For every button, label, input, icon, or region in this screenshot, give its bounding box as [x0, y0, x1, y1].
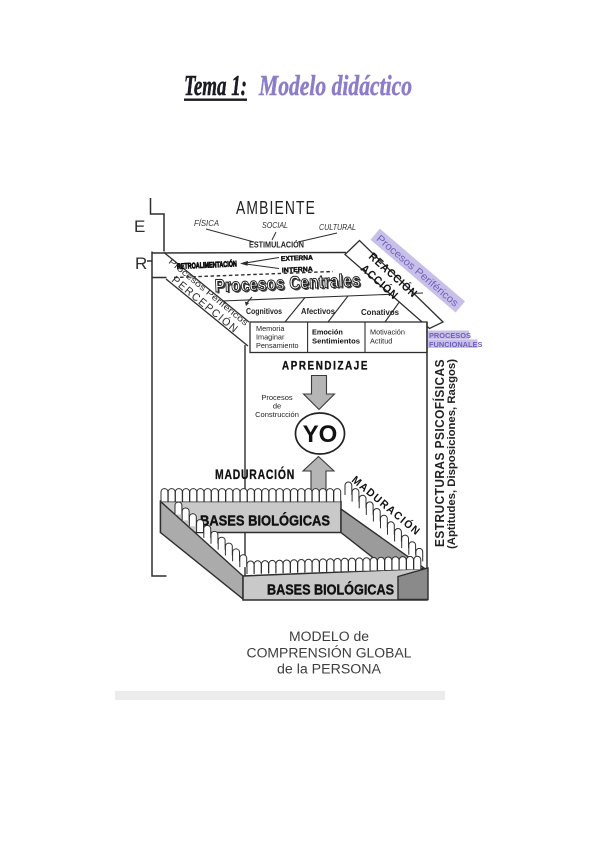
svg-text:FÍSICA: FÍSICA	[194, 218, 219, 228]
svg-text:Motivación: Motivación	[370, 328, 405, 337]
svg-text:Tema 1:: Tema 1:	[184, 70, 247, 102]
svg-text:ESTRUCTURAS PSICOFÍSICAS: ESTRUCTURAS PSICOFÍSICAS	[432, 359, 447, 547]
svg-text:FUNCIONALES: FUNCIONALES	[429, 340, 482, 349]
svg-text:Sentimientos: Sentimientos	[312, 337, 360, 346]
svg-text:MADURACIÓN: MADURACIÓN	[215, 467, 295, 482]
svg-text:APRENDIZAJE: APRENDIZAJE	[282, 359, 369, 373]
svg-text:PROCESOS: PROCESOS	[429, 331, 471, 340]
svg-text:MODELO de: MODELO de	[289, 629, 369, 644]
svg-text:Cognitivos: Cognitivos	[246, 307, 282, 316]
svg-text:YO: YO	[303, 421, 338, 448]
svg-text:Conativos: Conativos	[361, 308, 400, 317]
svg-text:Emoción: Emoción	[312, 328, 343, 337]
svg-text:E: E	[134, 217, 145, 236]
svg-text:Modelo didáctico: Modelo didáctico	[258, 70, 412, 102]
svg-text:BASES BIOLÓGICAS: BASES BIOLÓGICAS	[267, 581, 394, 599]
svg-text:COMPRENSIÓN GLOBAL: COMPRENSIÓN GLOBAL	[247, 646, 412, 661]
svg-text:AMBIENTE: AMBIENTE	[236, 197, 316, 218]
svg-text:de la PERSONA: de la PERSONA	[277, 662, 381, 677]
svg-text:Actitud: Actitud	[370, 337, 392, 346]
svg-text:SOCIAL: SOCIAL	[262, 220, 288, 230]
svg-text:Pensamiento: Pensamiento	[256, 341, 299, 350]
svg-text:Afectivos: Afectivos	[301, 307, 336, 316]
svg-text:CULTURAL: CULTURAL	[319, 222, 356, 232]
svg-text:ESTIMULACIÓN: ESTIMULACIÓN	[249, 239, 304, 250]
svg-text:BASES BIOLÓGICAS: BASES BIOLÓGICAS	[200, 512, 330, 530]
svg-text:(Aptitudes, Disposiciones, Ras: (Aptitudes, Disposiciones, Rasgos)	[446, 359, 458, 549]
svg-text:RETROALIMENTACIÓN: RETROALIMENTACIÓN	[177, 259, 237, 271]
svg-text:R: R	[135, 254, 147, 273]
svg-text:Construcción: Construcción	[255, 410, 299, 419]
svg-text:EXTERNA: EXTERNA	[281, 255, 313, 263]
